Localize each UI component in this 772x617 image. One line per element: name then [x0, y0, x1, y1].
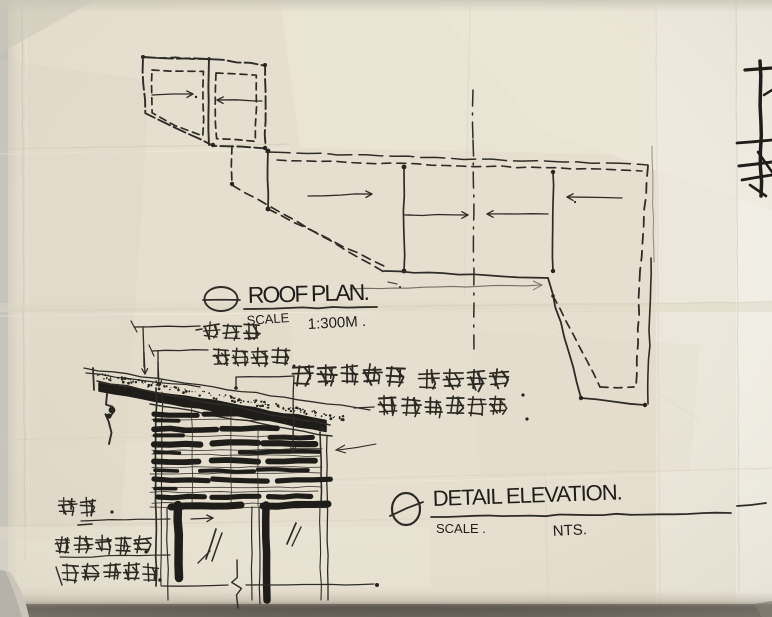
svg-text:1:300M .: 1:300M . — [307, 313, 366, 333]
svg-text:ROOF PLAN.: ROOF PLAN. — [247, 279, 370, 308]
svg-text:NTS.: NTS. — [552, 521, 587, 540]
svg-text:SCALE .: SCALE . — [436, 521, 486, 536]
